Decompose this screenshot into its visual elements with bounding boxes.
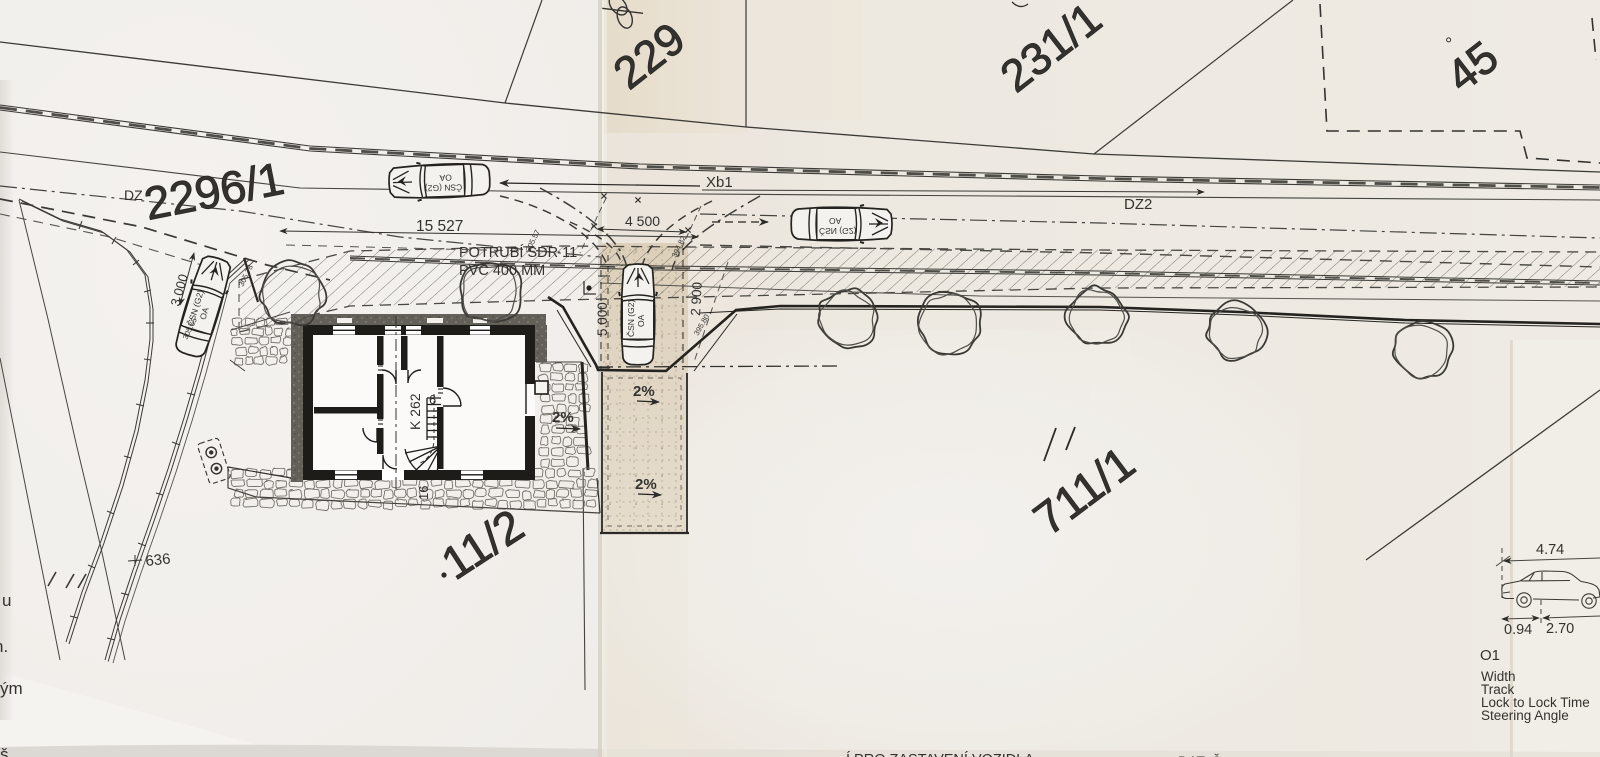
svg-text:0.94: 0.94 [1504, 622, 1532, 638]
svg-text:2 900: 2 900 [688, 282, 705, 317]
svg-text:5.000: 5.000 [595, 302, 610, 336]
svg-text:POTRUBÍ SDR 11: POTRUBÍ SDR 11 [459, 244, 577, 261]
svg-text:n.: n. [0, 637, 8, 656]
svg-text:PVC 400 MM: PVC 400 MM [459, 263, 545, 279]
svg-text:DAT. Č.: DAT. Č. [1178, 753, 1225, 757]
svg-text:K 262: K 262 [407, 393, 423, 430]
svg-text:DZ: DZ [124, 187, 143, 203]
svg-text:2%: 2% [633, 383, 655, 400]
svg-text:DZ2: DZ2 [1124, 196, 1152, 213]
svg-text:Xb1: Xb1 [706, 174, 733, 191]
svg-text:4 500: 4 500 [625, 213, 660, 229]
svg-text:ým: ým [0, 679, 23, 698]
svg-text:O1: O1 [1480, 647, 1500, 664]
svg-text:Í PRO ZASTAVENÍ VOZIDLA: Í PRO ZASTAVENÍ VOZIDLA [846, 751, 1034, 757]
svg-text:2%: 2% [635, 476, 657, 493]
svg-text:u: u [2, 591, 11, 610]
svg-text:2%: 2% [552, 409, 574, 426]
svg-text:15 527: 15 527 [416, 218, 463, 235]
svg-text:6: 6 [429, 392, 436, 407]
svg-text:4.74: 4.74 [1536, 542, 1564, 558]
svg-text:š: š [0, 745, 9, 757]
svg-text:16: 16 [416, 486, 431, 500]
svg-text:2.70: 2.70 [1546, 621, 1574, 637]
svg-text:Steering Angle: Steering Angle [1481, 708, 1569, 723]
svg-text:636: 636 [145, 550, 172, 570]
